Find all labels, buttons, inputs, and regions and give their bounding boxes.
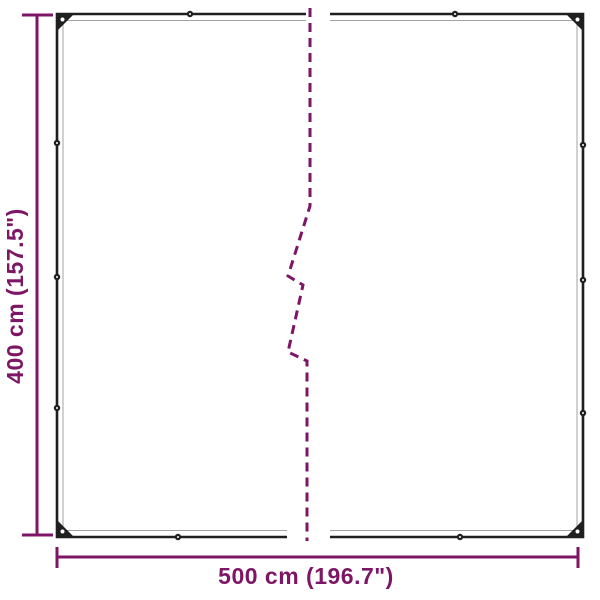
grommet-hole-icon (189, 13, 191, 15)
height-dimension-label: 400 cm (157.5") (2, 208, 28, 384)
grommet-hole-icon (454, 13, 456, 15)
height-dimension: 400 cm (157.5") (2, 15, 53, 535)
grommet-hole-icon (459, 536, 461, 538)
corner-grommet-icon (57, 14, 74, 31)
corner-grommet-icon (566, 14, 583, 31)
corner-grommet-icon (57, 520, 74, 537)
corner-grommet-icon (566, 520, 583, 537)
product-dimension-diagram: 400 cm (157.5") 500 cm (196.7") (0, 0, 600, 600)
tarp-right-hem-line (330, 21, 577, 531)
grommet-hole-icon (56, 276, 58, 278)
grommet-hole-icon (177, 536, 179, 538)
grommet-hole-icon (582, 144, 584, 146)
grommet-hole-icon (582, 412, 584, 414)
corner-grommet-hole-icon (61, 530, 65, 534)
corner-grommet-hole-icon (576, 530, 580, 534)
tarp-right-panel (330, 11, 586, 540)
grommet-hole-icon (56, 407, 58, 409)
width-dimension-label: 500 cm (196.7") (218, 563, 394, 589)
tarp-left-outline (57, 14, 306, 537)
diagram-canvas: 400 cm (157.5") 500 cm (196.7") (0, 0, 600, 600)
corner-grommet-hole-icon (576, 18, 580, 22)
width-dimension: 500 cm (196.7") (57, 547, 578, 589)
grommet-hole-icon (582, 279, 584, 281)
break-line-icon (288, 8, 310, 541)
corner-grommet-hole-icon (61, 18, 65, 22)
tarp-right-outline (330, 14, 583, 537)
tarp-left-hem-line (63, 21, 306, 531)
grommet-hole-icon (56, 142, 58, 144)
tarp-left-panel (54, 11, 306, 540)
